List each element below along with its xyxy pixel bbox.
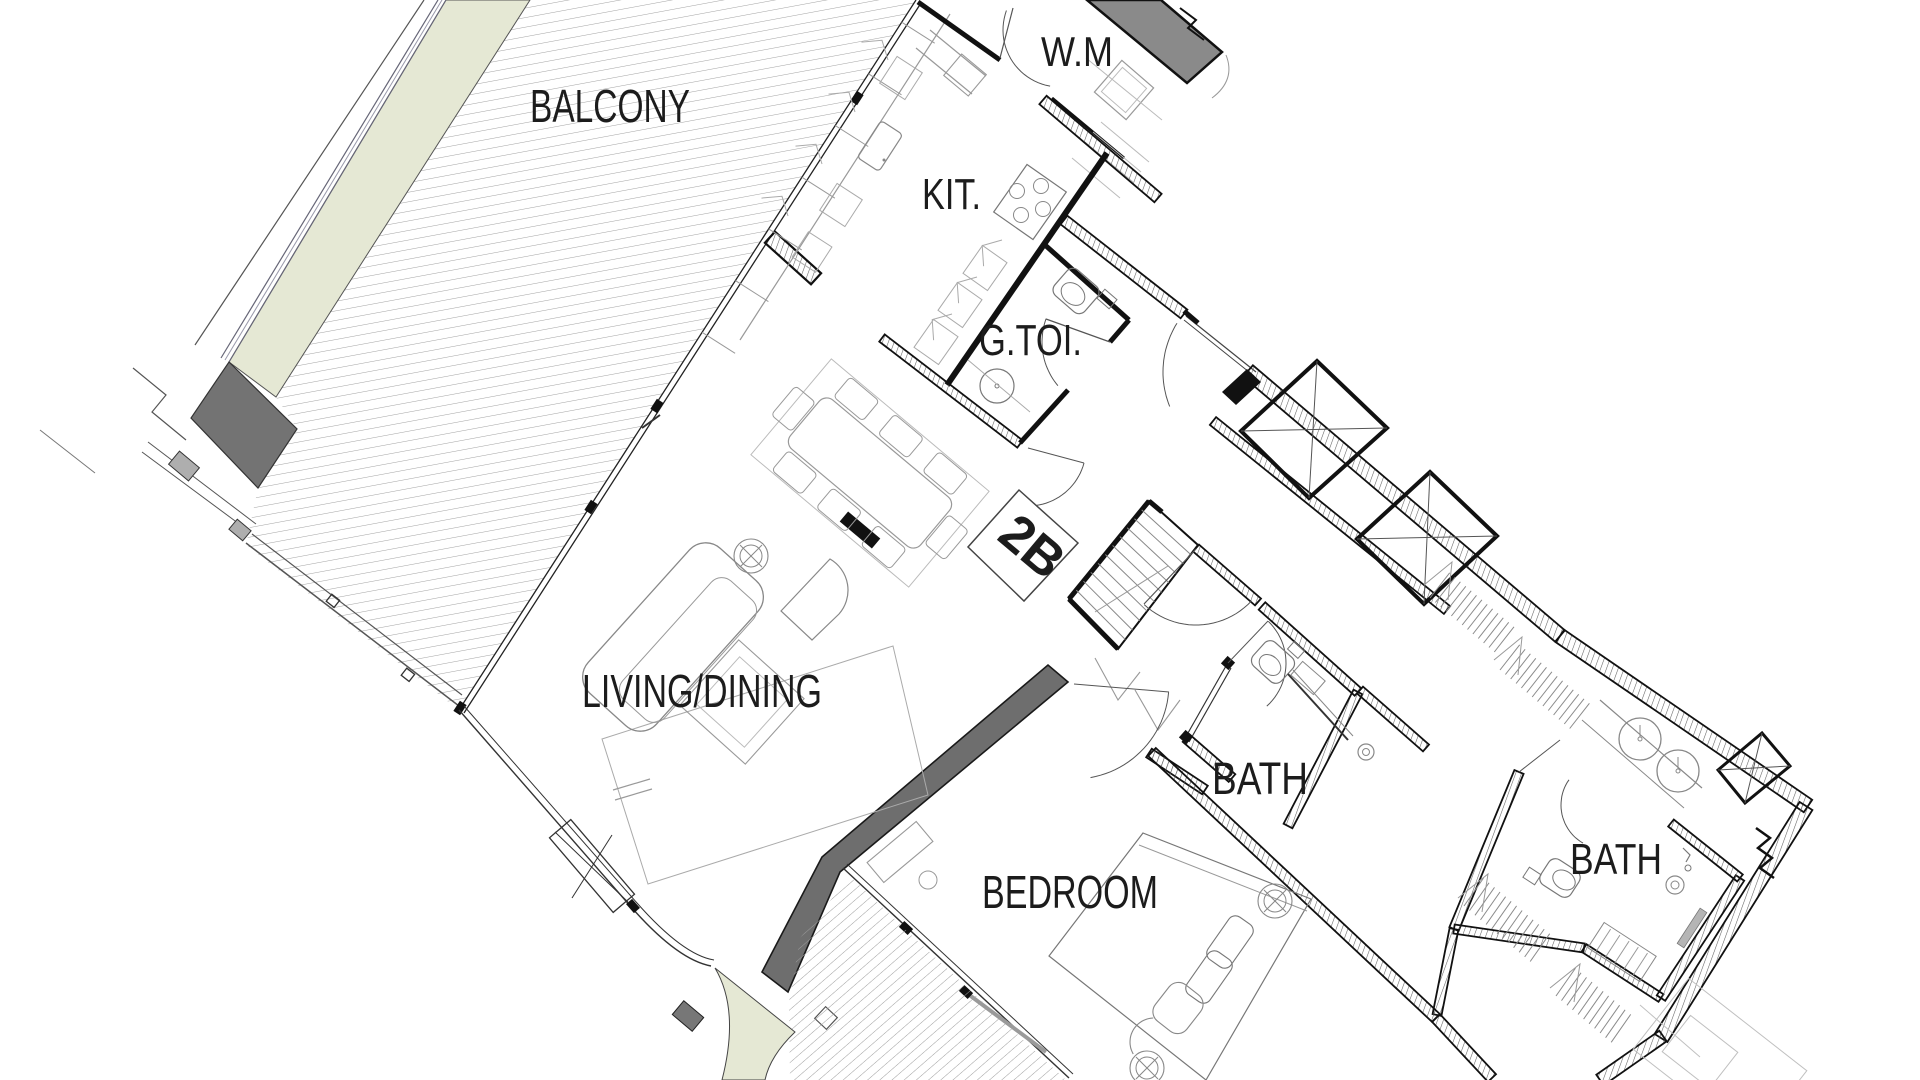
svg-text:BATH: BATH (1570, 835, 1662, 884)
svg-text:W.M: W.M (1041, 28, 1113, 75)
svg-text:BEDROOM: BEDROOM (982, 866, 1158, 918)
svg-text:BATH: BATH (1212, 753, 1308, 804)
svg-text:KIT.: KIT. (922, 170, 981, 219)
svg-text:LIVING/DINING: LIVING/DINING (582, 665, 822, 717)
svg-text:G.TOI.: G.TOI. (979, 316, 1082, 365)
svg-text:BALCONY: BALCONY (530, 80, 690, 132)
